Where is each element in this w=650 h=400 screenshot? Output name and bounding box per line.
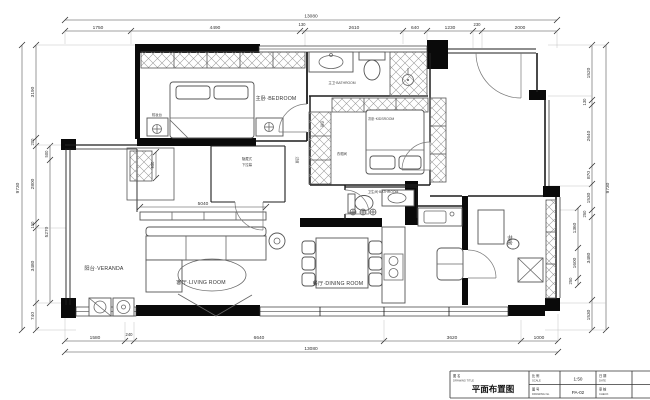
titleblock-no-label-en: DRAWING No. [532,392,550,396]
tv-cabinet [140,212,266,220]
label-dining: 餐厅·DINING ROOM [313,279,364,287]
rug [178,259,246,291]
dim-left-overall: 9730 [15,182,21,193]
label-closet: 衣帽间 [337,151,348,156]
dim-bottom-3: 3620 [447,335,458,341]
dim-right-3: 870 [586,171,592,179]
side-table [269,233,285,249]
titleblock-check-label: 审 核 [599,387,607,392]
titleblock-no-value: PA-02 [572,390,585,395]
label-hallway: 过道 [295,157,300,164]
label-dresser: 梳妆台 [152,112,163,117]
dim-right-7: 1530 [586,309,592,320]
dim-left-inner-0: 500 [44,150,49,158]
dim-left-4: 3480 [30,260,36,271]
nightstand-right [256,118,283,136]
dim-top-6: 230 [474,22,482,27]
drawing-title: 平面布置图 [472,384,515,394]
dim-bottom-1: 240 [126,332,134,337]
bath-sink [309,52,353,72]
titleblock-name-label-en: DRAWING TITLE [453,379,474,383]
dim-bottom-2: 6640 [254,335,265,341]
dim-top-overall: 13080 [304,14,318,20]
dim-top-0: 1750 [93,25,104,31]
label-projector-2: 下拉幕 [242,162,253,167]
dim-top-3: 2610 [349,25,360,31]
label-kids-room: 次卧·KIDSROOM [368,116,395,121]
dim-top-1: 4490 [210,25,221,31]
dim-left-1: 200 [30,138,35,146]
drawing-sheet: 13080 1750 4490 130 2610 640 1230 230 20… [0,0,650,400]
dim-right-5: 250 [582,210,587,218]
dim-right-2: 2640 [586,130,592,141]
floor-plan-canvas: 13080 1750 4490 130 2610 640 1230 230 20… [0,0,650,400]
nightstand-left [147,118,168,136]
dim-top-4: 640 [411,25,419,31]
master-bed [170,82,254,138]
label-projector-1: 隐藏式 [242,156,253,161]
dim-closet-depth: 950 [150,161,155,169]
titleblock-name-label: 图 名 [453,373,460,378]
label-master-bedroom: 主卧·BEDROOM [256,94,297,102]
label-study: 书房 [506,235,514,246]
dim-right-4: 1530 [586,192,592,203]
dim-left-5: 740 [30,312,36,320]
dim-top-5: 1230 [445,25,456,31]
titleblock-no-label: 图 号 [532,387,539,392]
titleblock-scale-label-en: SCALE [532,379,541,383]
dim-right-inner-0: 1360 [572,222,578,233]
dimension-chain-top: 13080 1750 4490 130 2610 640 1230 230 20… [62,14,560,49]
dim-right-overall: 9730 [605,182,611,193]
dim-bottom-0: 1580 [90,335,101,341]
dim-bottom-4: 1000 [534,335,545,341]
dim-top-2: 130 [299,22,307,27]
fridge [437,248,463,280]
dim-left-0: 3190 [30,86,36,97]
title-block: 图 名 DRAWING TITLE 平面布置图 比 例 SCALE 1:50 图… [450,371,650,398]
label-living: 客厅·LIVING ROOM [176,278,226,286]
study-desk [478,210,543,282]
dim-left-2: 2800 [30,178,36,189]
dim-left-3: 150 [30,221,35,229]
label-wardrobe: 衣柜 [320,121,325,128]
label-veranda: 阳台·VERANDA [84,264,124,272]
media-room-walls [211,146,285,202]
dim-right-inner-2: 250 [568,277,573,285]
bookshelf [546,200,556,298]
dim-right-0: 1520 [586,67,592,78]
label-bathroom: 卫生间·BATHROOM [368,189,399,194]
label-master-bath: 主卫·BATHROOM [328,80,355,85]
dim-right-1: 130 [582,98,587,106]
dim-sofa-wall: 5040 [198,201,209,207]
titleblock-date-label: 日 期 [599,373,606,378]
dim-bottom-overall: 13080 [304,346,318,352]
titleblock-scale-label: 比 例 [532,373,539,378]
dim-right-6: 3480 [586,252,592,263]
titleblock-check-label-en: CHECK [599,392,609,396]
dim-top-7: 2000 [515,25,526,31]
dimension-chain-bottom: 1580 240 6640 3620 1000 13080 [62,314,561,355]
dim-right-inner-1: 1600 [572,257,578,268]
titleblock-date-label-en: DATE [599,379,606,383]
shower-area [390,52,427,96]
titleblock-scale-value: 1:50 [574,377,583,382]
dimension-chain-left: 9730 3190 200 2800 150 3480 740 500 5270 [15,42,135,333]
bath-toilet [359,52,385,80]
